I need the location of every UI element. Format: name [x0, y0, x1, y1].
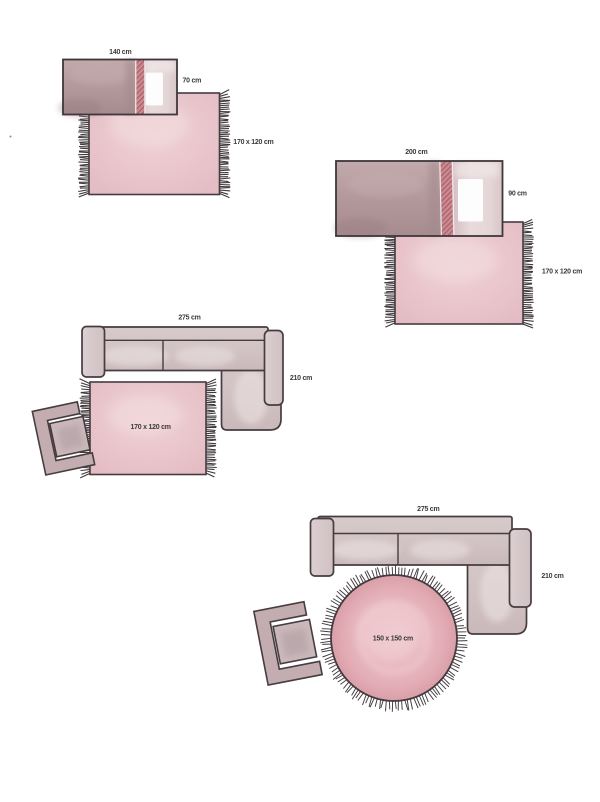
svg-text:200 cm: 200 cm: [405, 149, 427, 156]
svg-text:170 x 120 cm: 170 x 120 cm: [542, 268, 582, 275]
svg-text:140 cm: 140 cm: [109, 49, 131, 56]
svg-text:275 cm: 275 cm: [178, 314, 200, 321]
svg-text:150 x 150 cm: 150 x 150 cm: [373, 635, 413, 642]
svg-text:170 x 120 cm: 170 x 120 cm: [233, 139, 273, 146]
svg-text:210 cm: 210 cm: [290, 375, 312, 382]
svg-text:90 cm: 90 cm: [508, 190, 527, 197]
svg-text:210 cm: 210 cm: [541, 573, 563, 580]
svg-text:170 x 120 cm: 170 x 120 cm: [130, 424, 170, 431]
svg-text:275 cm: 275 cm: [417, 506, 439, 513]
svg-text:70 cm: 70 cm: [182, 78, 201, 85]
